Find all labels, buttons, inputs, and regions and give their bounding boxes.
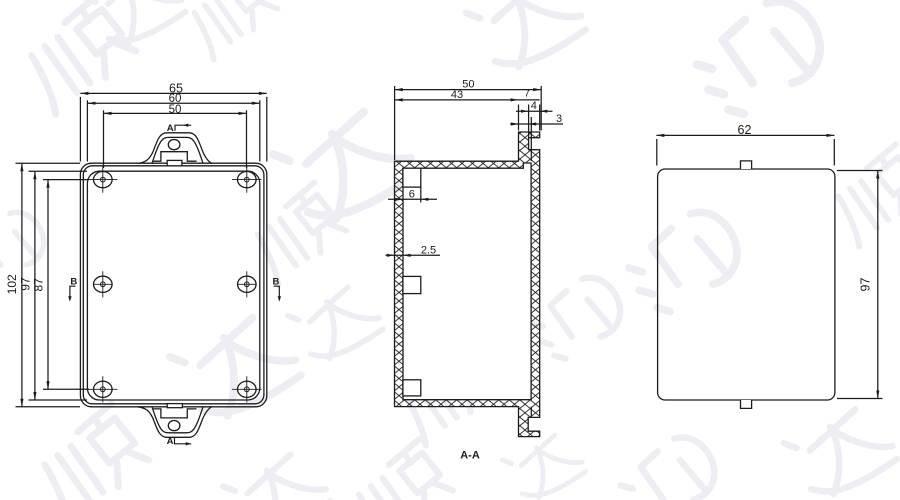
svg-text:87: 87	[31, 278, 45, 292]
svg-text:2.5: 2.5	[421, 245, 436, 257]
svg-text:A: A	[167, 436, 174, 447]
svg-text:B: B	[272, 277, 279, 288]
svg-text:A-A: A-A	[460, 450, 480, 462]
svg-text:102: 102	[5, 274, 19, 294]
svg-text:A: A	[167, 123, 174, 134]
svg-text:3: 3	[556, 113, 562, 125]
svg-text:97: 97	[18, 277, 32, 291]
svg-text:4: 4	[531, 100, 537, 112]
svg-text:7: 7	[524, 88, 530, 100]
svg-text:62: 62	[738, 123, 752, 137]
svg-text:50: 50	[462, 78, 474, 90]
svg-text:50: 50	[169, 104, 182, 116]
svg-text:97: 97	[859, 278, 873, 292]
svg-text:43: 43	[451, 89, 463, 101]
svg-text:B: B	[70, 277, 77, 288]
svg-text:6: 6	[409, 189, 415, 201]
